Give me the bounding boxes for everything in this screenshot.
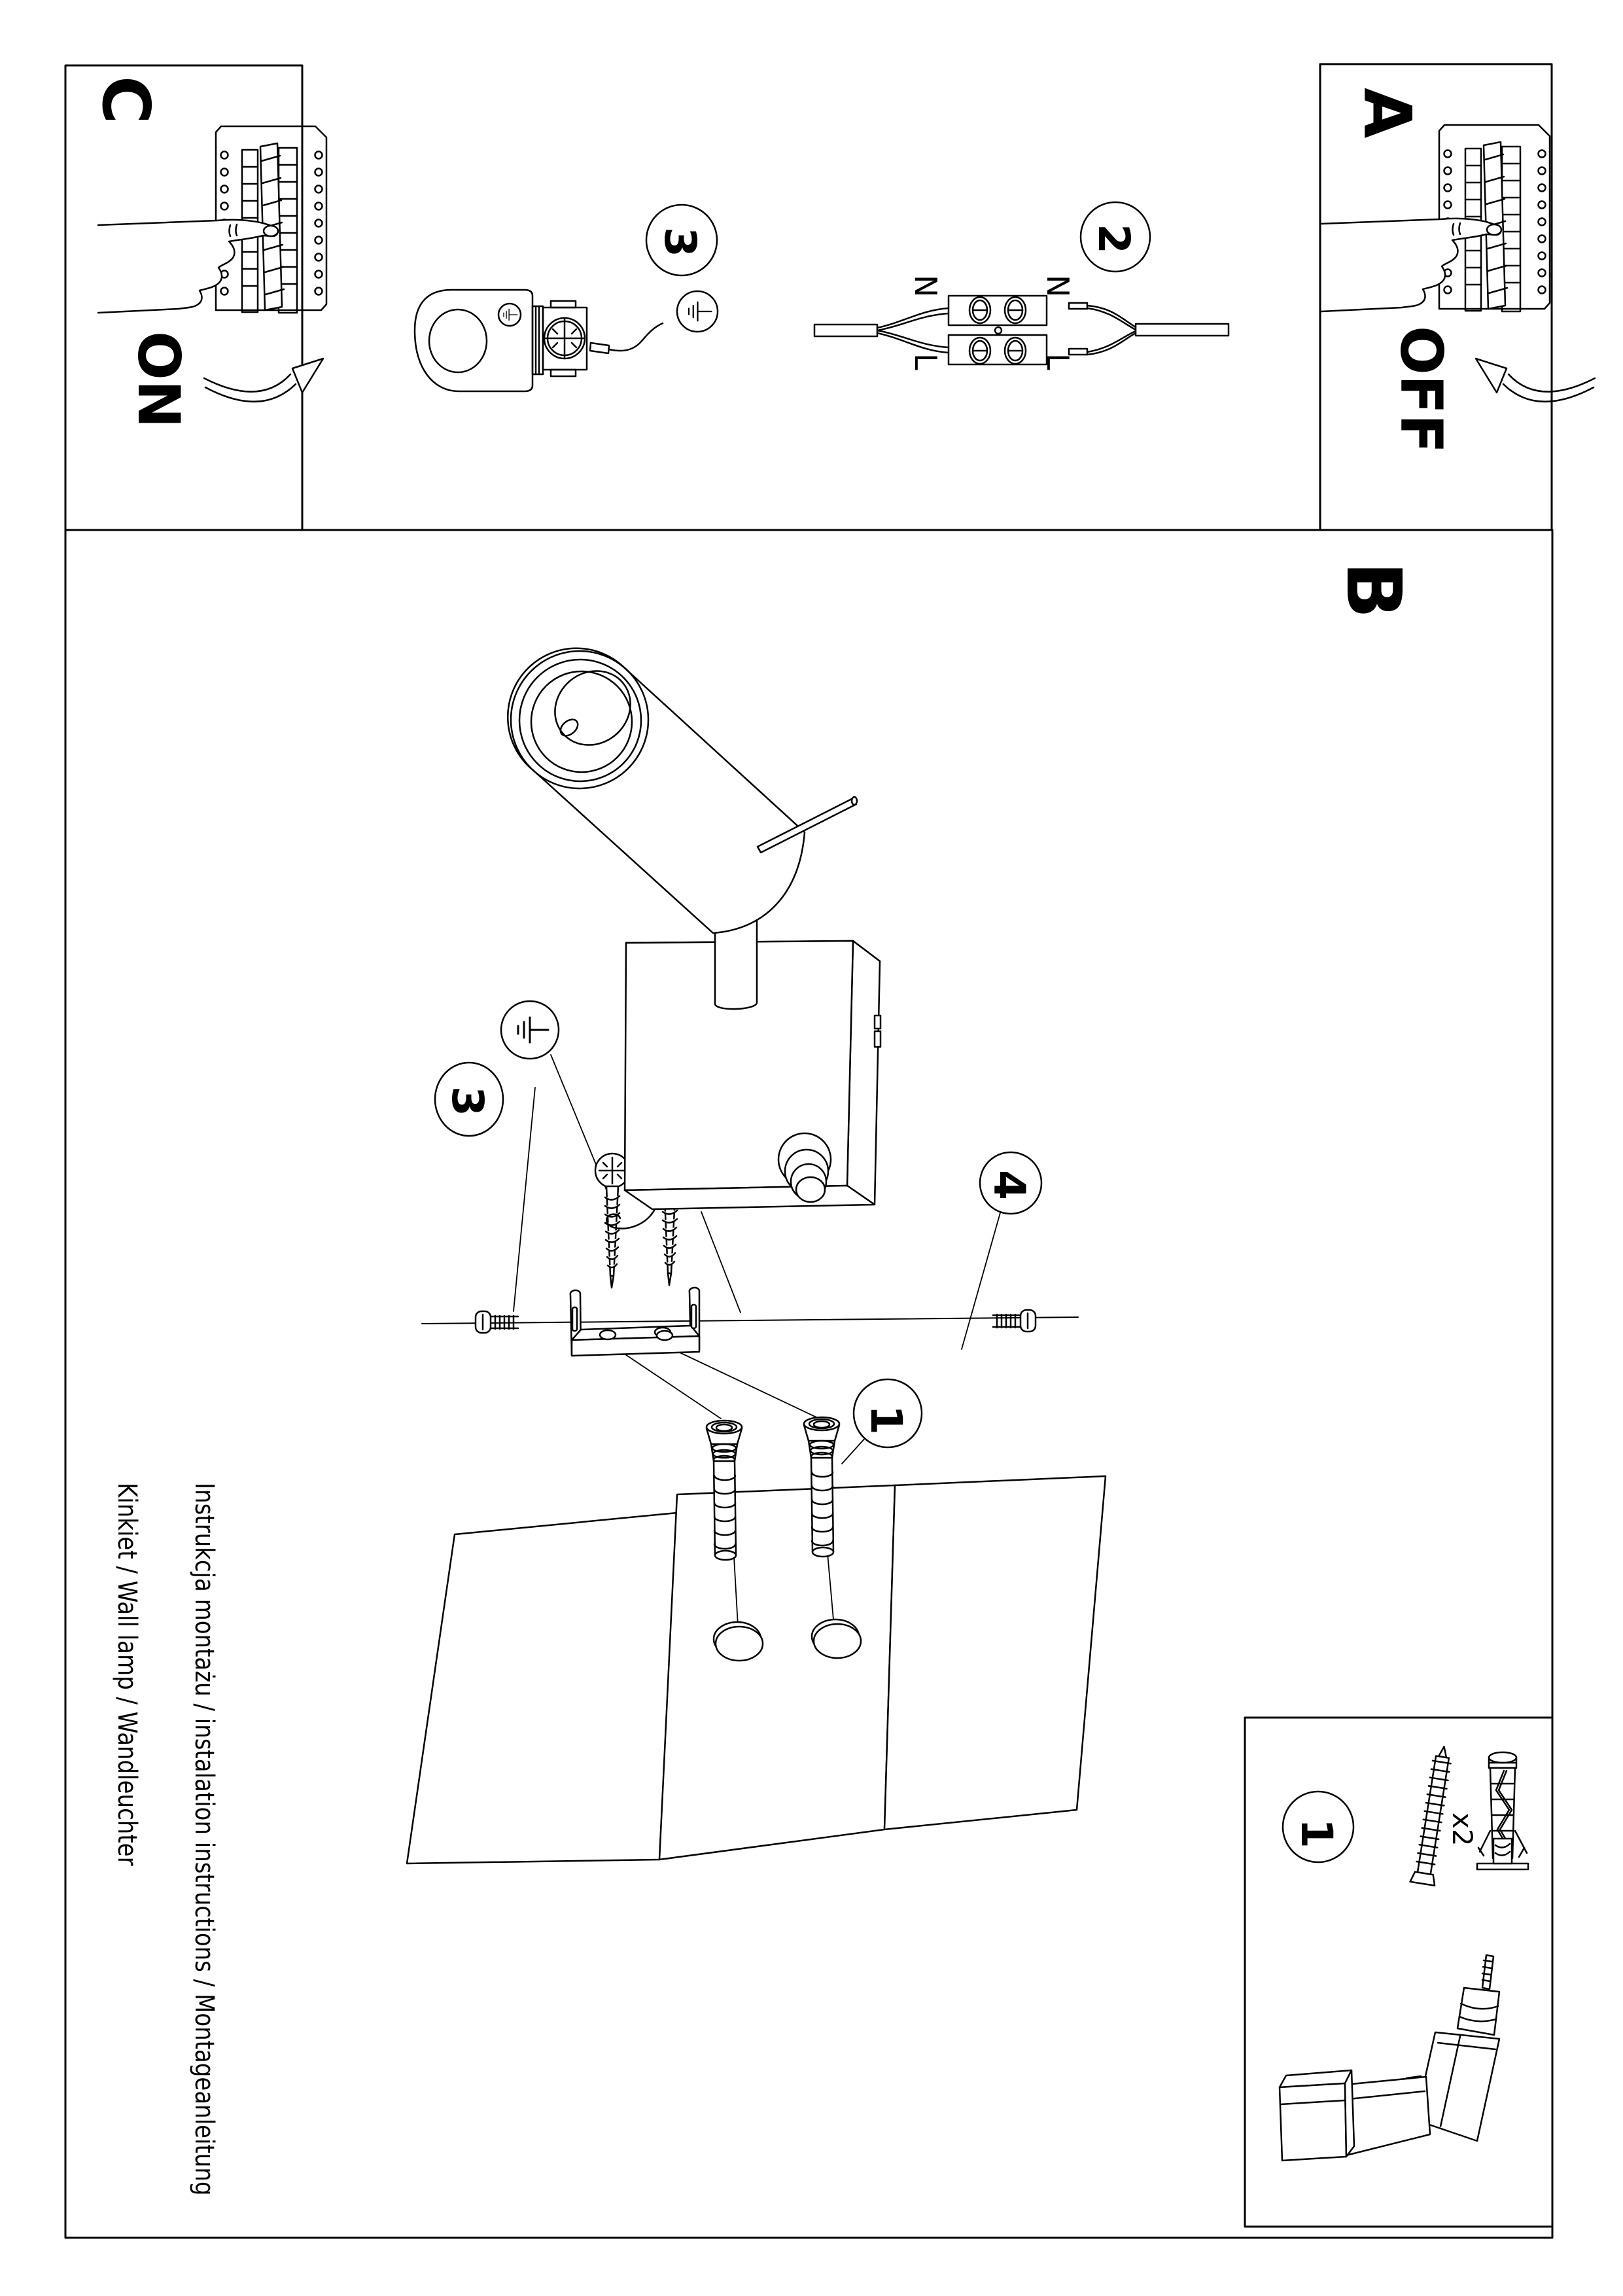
- wire-n-right-label: N: [1043, 275, 1073, 297]
- anchor-quantity-label: x2: [1448, 1812, 1476, 1846]
- callout-1-parts-label: 1: [1295, 1818, 1338, 1848]
- arrow-off-icon: [1476, 359, 1595, 402]
- breaker-panel-off-illustration: [1321, 125, 1595, 402]
- terminal-bottom: [949, 335, 1047, 364]
- power-on-label: ON: [130, 331, 187, 428]
- parts-anchor: [1477, 1752, 1528, 1869]
- terminal-top: [949, 296, 1047, 325]
- footer-line-2: Kinkiet / Wall lamp / Wandleuchter: [114, 1483, 140, 1866]
- step-a-label: A: [1354, 88, 1420, 138]
- main-panel-border: [65, 530, 1552, 2238]
- callout-3-top-label: 3: [658, 227, 701, 257]
- lamp-head-illustration: [508, 648, 805, 933]
- wire-l-right-label: L: [1043, 353, 1073, 370]
- terminal-screws: [969, 297, 1026, 364]
- bolt-axis-line: [422, 1317, 1078, 1324]
- callout-2-label: 2: [1092, 224, 1135, 254]
- instruction-sheet: { "steps": { "a": { "label": "A", "power…: [0, 0, 1623, 2296]
- cable-right: [1136, 324, 1229, 336]
- step-c-label: C: [93, 76, 158, 124]
- callout-3-mid-label: 3: [445, 1086, 489, 1116]
- ground-terminal-illustration: [415, 290, 663, 391]
- wire-tip-top: [1069, 303, 1087, 309]
- step-b-label: B: [1335, 561, 1410, 619]
- footer-line-1: Instrukcja montażu / instalation instruc…: [191, 1483, 217, 2196]
- wire-l-left-label: L: [911, 353, 941, 370]
- line-art: [0, 0, 1623, 2296]
- arrow-on-icon: [204, 359, 323, 402]
- bolt-right: [993, 1310, 1036, 1332]
- wire-n-left-label: N: [911, 275, 941, 297]
- callout-4-label: 4: [987, 1170, 1030, 1200]
- bolt-left: [476, 1311, 518, 1333]
- callout-1-anchors-label: 1: [864, 1405, 907, 1435]
- terminal-block-illustration: [814, 296, 1229, 364]
- drill-illustration: [1280, 1955, 1499, 2161]
- power-off-label: OFF: [1392, 326, 1450, 453]
- cable-left: [814, 325, 877, 336]
- wall-illustration: [407, 1476, 1106, 1863]
